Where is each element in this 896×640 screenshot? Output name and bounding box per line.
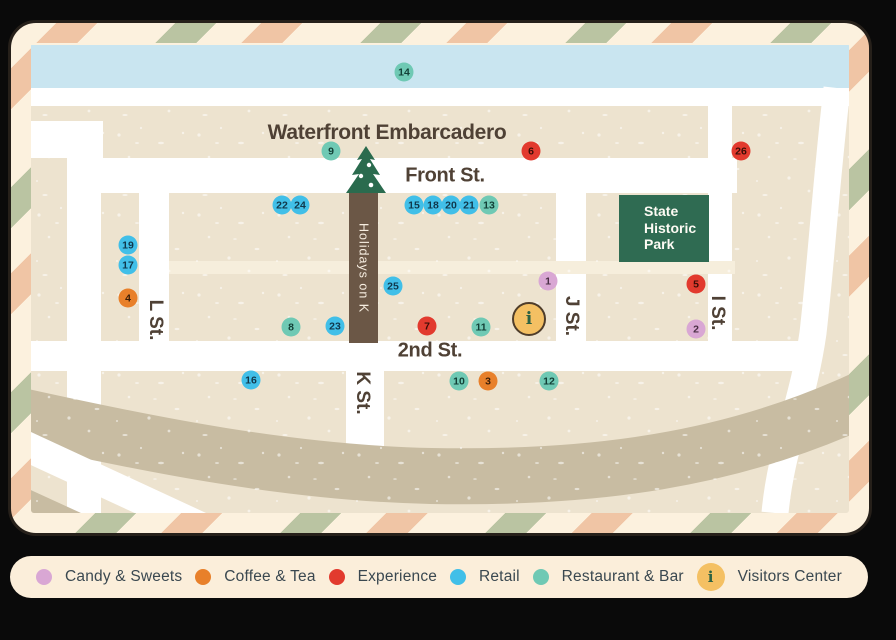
legend-label: Experience: [358, 568, 438, 586]
visitors-dot-icon: i: [697, 563, 725, 591]
map-marker-18[interactable]: 18: [424, 196, 443, 215]
map-marker-1[interactable]: 1: [539, 272, 558, 291]
markers-layer: 14962622241518202113191742515823711i2161…: [31, 43, 849, 513]
legend-item-coffee: Coffee & Tea: [195, 568, 315, 586]
map-marker-24[interactable]: 24: [291, 196, 310, 215]
retail-dot-icon: [450, 569, 466, 585]
map-marker-21[interactable]: 21: [460, 196, 479, 215]
map-marker-7[interactable]: 7: [418, 317, 437, 336]
coffee-dot-icon: [195, 569, 211, 585]
map-canvas: State Historic Park Holidays on K Waterf…: [31, 43, 849, 513]
map-marker-17[interactable]: 17: [119, 256, 138, 275]
map-marker-12[interactable]: 12: [540, 372, 559, 391]
map-marker-22[interactable]: 22: [273, 196, 292, 215]
map-marker-4[interactable]: 4: [119, 289, 138, 308]
map-marker-8[interactable]: 8: [282, 318, 301, 337]
legend-item-retail: Retail: [450, 568, 520, 586]
map-marker-5[interactable]: 5: [687, 275, 706, 294]
map-marker-20[interactable]: 20: [442, 196, 461, 215]
map-marker-26[interactable]: 26: [732, 142, 751, 161]
map-marker-6[interactable]: 6: [522, 142, 541, 161]
map-marker-11[interactable]: 11: [472, 318, 491, 337]
legend-label: Restaurant & Bar: [562, 568, 684, 586]
restaurant-dot-icon: [533, 569, 549, 585]
map-marker-13[interactable]: 13: [480, 196, 499, 215]
map-marker-23[interactable]: 23: [326, 317, 345, 336]
legend-item-visitors: iVisitors Center: [697, 563, 842, 591]
legend-bar: Candy & SweetsCoffee & TeaExperienceReta…: [10, 556, 868, 598]
map-marker-2[interactable]: 2: [687, 320, 706, 339]
map-marker-10[interactable]: 10: [450, 372, 469, 391]
experience-dot-icon: [329, 569, 345, 585]
legend-item-experience: Experience: [329, 568, 438, 586]
holiday-map-card: State Historic Park Holidays on K Waterf…: [8, 20, 872, 536]
legend-label: Coffee & Tea: [224, 568, 315, 586]
visitors-center-marker[interactable]: i: [512, 302, 546, 336]
legend-label: Candy & Sweets: [65, 568, 182, 586]
legend-label: Retail: [479, 568, 520, 586]
map-marker-9[interactable]: 9: [322, 142, 341, 161]
legend-item-restaurant: Restaurant & Bar: [533, 568, 684, 586]
map-marker-3[interactable]: 3: [479, 372, 498, 391]
map-marker-16[interactable]: 16: [242, 371, 261, 390]
map-marker-19[interactable]: 19: [119, 236, 138, 255]
map-marker-14[interactable]: 14: [395, 63, 414, 82]
map-marker-15[interactable]: 15: [405, 196, 424, 215]
legend-label: Visitors Center: [738, 568, 842, 586]
page: State Historic Park Holidays on K Waterf…: [0, 0, 896, 640]
map-marker-25[interactable]: 25: [384, 277, 403, 296]
candy-dot-icon: [36, 569, 52, 585]
legend-item-candy: Candy & Sweets: [36, 568, 182, 586]
